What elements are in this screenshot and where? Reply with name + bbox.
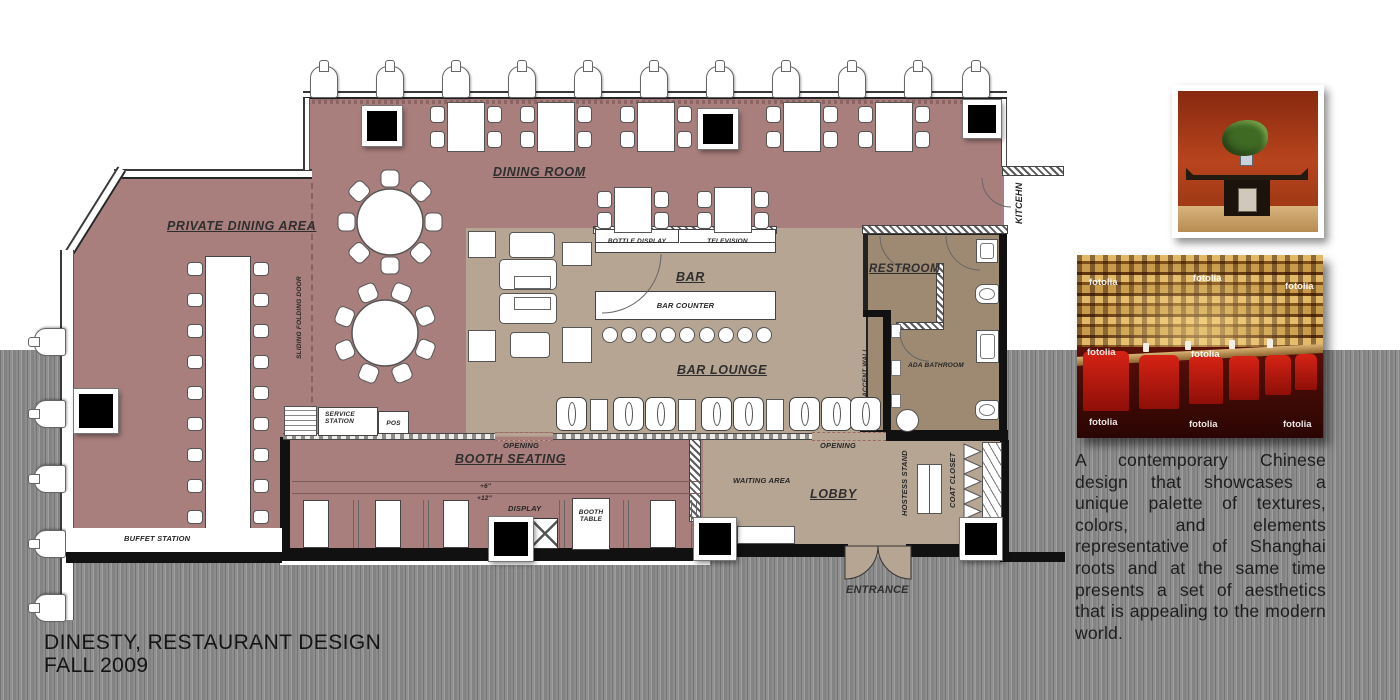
pos-station: POS (378, 411, 409, 434)
photo-bonsai-plant (1222, 120, 1268, 156)
facade-pilaster-ornament (310, 66, 338, 98)
lounge-side-table (562, 327, 592, 363)
structural-column (74, 389, 118, 433)
photo-table-plaque (1238, 188, 1257, 212)
poster-title: DINESTY, RESTAURANT DESIGN FALL 2009 (44, 631, 381, 677)
lounge-chair (645, 397, 676, 431)
television-label: TELEVISION (707, 238, 748, 245)
banquet-table (205, 256, 251, 544)
facade-pilaster-ornament (442, 66, 470, 98)
waiting-bench (737, 526, 795, 544)
ada-bathroom-label: ADA BATHROOM (908, 362, 964, 369)
kitchen-label: KITCEHN (1014, 174, 1024, 232)
dining-table-4seat (697, 187, 769, 233)
fotolia-watermark: fotolia (1285, 281, 1314, 292)
lounge-side-table (590, 399, 608, 431)
lounge-side-table (766, 399, 784, 431)
wall-opening-west (495, 432, 553, 441)
pos-label: POS (386, 420, 400, 427)
buffet-south-wall (66, 552, 282, 563)
banquet-chair (187, 479, 203, 493)
restroom-label: RESTROOM (869, 263, 940, 275)
corridor-west-wall (1001, 99, 1007, 167)
accent-wall-upper (863, 233, 867, 313)
bar-counter-label: BAR COUNTER (657, 301, 715, 310)
banquet-chair (253, 479, 269, 493)
booth-seating-label: BOOTH SEATING (455, 452, 566, 466)
photo-booth-chair (1189, 356, 1223, 404)
photo-altar-table (1172, 85, 1324, 238)
fotolia-watermark: fotolia (1089, 277, 1118, 288)
photo-table-setting (1229, 340, 1235, 349)
facade-pilaster-ornament (772, 66, 800, 98)
lounge-side-table (678, 399, 696, 431)
poster-title-line1: DINESTY, RESTAURANT DESIGN (44, 631, 381, 654)
facade-pilaster-ornament (34, 594, 66, 622)
banquet-chair (187, 510, 203, 524)
dining-room-label: DINING ROOM (493, 165, 586, 179)
fotolia-watermark: fotolia (1089, 417, 1118, 428)
structural-column (963, 100, 1001, 138)
booth-divider (353, 500, 359, 548)
facade-pilaster-ornament (838, 66, 866, 98)
photo-booth-chair (1083, 351, 1129, 411)
booth-table-labeled: BOOTH TABLE (572, 498, 610, 550)
accent-wall-niche (891, 360, 901, 376)
banquet-chair (253, 386, 269, 400)
facade-pilaster-ornament (706, 66, 734, 98)
facade-pilaster-ornament (640, 66, 668, 98)
private-dining-label: PRIVATE DINING AREA (167, 219, 316, 233)
private-dining-north-wall (114, 169, 312, 179)
lounge-sofa (510, 332, 550, 358)
structural-column (489, 517, 533, 561)
bar-label: BAR (676, 270, 705, 284)
elevation-6-label: +6" (480, 483, 491, 490)
banquet-chair (253, 262, 269, 276)
opening-label-east: OPENING (820, 441, 856, 450)
banquet-chair (253, 324, 269, 338)
dining-table-4seat (620, 102, 692, 152)
sliding-door-label: SLIDING FOLDING DOOR (296, 268, 303, 368)
bar-stool (641, 327, 657, 343)
display-label: DISPLAY (508, 504, 541, 513)
buffet-station: BUFFET STATION (66, 528, 282, 552)
hostess-stand (917, 464, 942, 514)
dining-table-4seat (597, 187, 669, 233)
banquet-chair (187, 355, 203, 369)
banquet-chair (187, 386, 203, 400)
restroom-east-wall (999, 233, 1007, 441)
service-station: SERVICE STATION (318, 407, 378, 436)
booth-table-label: BOOTH TABLE (573, 499, 609, 523)
kitchen-corridor-wall (1002, 166, 1064, 176)
photo-table-base (1224, 178, 1270, 216)
facade-pilaster-ornament (34, 465, 66, 493)
lounge-chair (821, 397, 852, 431)
photo-table-setting (1267, 339, 1273, 348)
dining-table-4seat (766, 102, 838, 152)
booth-divider (423, 500, 429, 548)
accent-wall-niche (891, 324, 901, 338)
facade-pilaster-ornament (376, 66, 404, 98)
buffet-station-label: BUFFET STATION (66, 528, 282, 543)
accent-wall-label: ACCENT WALL (862, 342, 869, 402)
structural-column (362, 106, 402, 146)
dining-table-4seat (520, 102, 592, 152)
bar-stool (660, 327, 676, 343)
lounge-side-table (562, 242, 592, 266)
lounge-chair (701, 397, 732, 431)
structural-column (694, 518, 736, 560)
lounge-sofa (499, 259, 557, 290)
lounge-sofa (509, 232, 555, 258)
service-station-label: SERVICE STATION (319, 408, 377, 425)
facade-pilaster-ornament (34, 400, 66, 428)
banquet-chair (253, 510, 269, 524)
elevation-line-6 (292, 481, 703, 482)
elevation-12-label: +12" (477, 495, 492, 502)
waiting-area-label: WAITING AREA (733, 476, 791, 485)
facade-pilaster-ornament (574, 66, 602, 98)
banquet-chair (187, 324, 203, 338)
hostess-stand-label: HOSTESS STAND (900, 450, 909, 516)
photo-booth-chair (1265, 355, 1291, 395)
booth-table (650, 500, 676, 548)
banquet-chair (253, 355, 269, 369)
coat-closet-label: COAT CLOSET (948, 452, 957, 508)
photo-booth-chair (1139, 355, 1179, 409)
display-case (532, 518, 558, 549)
opening-label-west: OPENING (503, 441, 539, 450)
design-description: A contemporary Chinese design that showc… (1075, 450, 1326, 630)
banquet-chair (253, 448, 269, 462)
fotolia-watermark: fotolia (1283, 419, 1312, 430)
dining-table-4seat (858, 102, 930, 152)
fotolia-watermark: fotolia (1189, 419, 1218, 430)
restroom-sink (976, 330, 999, 363)
dining-west-wall-upper (303, 98, 310, 170)
restroom-north-wall (862, 225, 1008, 234)
facade-pilaster-ornament (962, 66, 990, 98)
lounge-chair (556, 397, 587, 431)
lounge-chair (733, 397, 764, 431)
restroom-toilet (975, 284, 999, 304)
restroom-partition-horizontal (896, 322, 944, 330)
east-wall-extension (1000, 552, 1065, 562)
poster-title-line2: FALL 2009 (44, 654, 381, 677)
restroom-toilet (975, 400, 999, 420)
bar-stool (602, 327, 618, 343)
facade-pilaster-ornament (34, 530, 66, 558)
dining-table-4seat (430, 102, 502, 152)
structural-column (960, 518, 1002, 560)
lounge-chair (613, 397, 644, 431)
bar-stool (737, 327, 753, 343)
booth-table (443, 500, 469, 548)
photo-table-top (1186, 168, 1308, 180)
lounge-side-table (468, 330, 496, 362)
photo-restaurant-interior: fotolia fotolia fotolia fotolia fotolia … (1077, 255, 1323, 438)
structural-column (698, 109, 738, 149)
bar-stool (718, 327, 734, 343)
service-stairs (284, 406, 317, 436)
booth-table (375, 500, 401, 548)
coat-closet-rack (982, 442, 1002, 518)
photo-table-setting (1143, 343, 1149, 352)
booth-table (303, 500, 329, 548)
banquet-chair (253, 293, 269, 307)
booth-divider (623, 500, 629, 548)
lounge-side-table (468, 231, 496, 258)
bar-lounge-label: BAR LOUNGE (677, 363, 767, 377)
banquet-chair (187, 417, 203, 431)
entrance-label: ENTRANCE (846, 584, 909, 596)
photo-altar-picture (1178, 91, 1318, 232)
banquet-chair (187, 262, 203, 276)
fotolia-watermark: fotolia (1193, 273, 1222, 284)
accent-wall-niche (891, 394, 901, 408)
lounge-chair (850, 397, 881, 431)
banquet-chair (187, 293, 203, 307)
facade-pilaster-ornament (34, 328, 66, 356)
elevation-line-12 (292, 493, 703, 494)
lounge-chair (789, 397, 820, 431)
banquet-chair (187, 448, 203, 462)
banquet-chair (253, 417, 269, 431)
booth-divider (559, 500, 565, 548)
fotolia-watermark: fotolia (1087, 347, 1116, 358)
west-exterior-wall (60, 250, 74, 620)
fotolia-watermark: fotolia (1191, 349, 1220, 360)
wall-opening-east (812, 432, 886, 441)
restroom-round-fixture (896, 409, 919, 432)
bottle-display-label: BOTTLE DISPLAY (608, 238, 666, 245)
lounge-sofa (499, 293, 557, 324)
restroom-sink (976, 239, 998, 263)
photo-booth-chair (1295, 354, 1317, 390)
bar-counter: BAR COUNTER (595, 291, 776, 320)
photo-booth-chair (1229, 356, 1259, 400)
booth-south-sill (280, 561, 710, 565)
lobby-label: LOBBY (810, 487, 857, 501)
bar-stool (699, 327, 715, 343)
facade-pilaster-ornament (508, 66, 536, 98)
facade-pilaster-ornament (904, 66, 932, 98)
accent-wall-lower (883, 310, 891, 437)
